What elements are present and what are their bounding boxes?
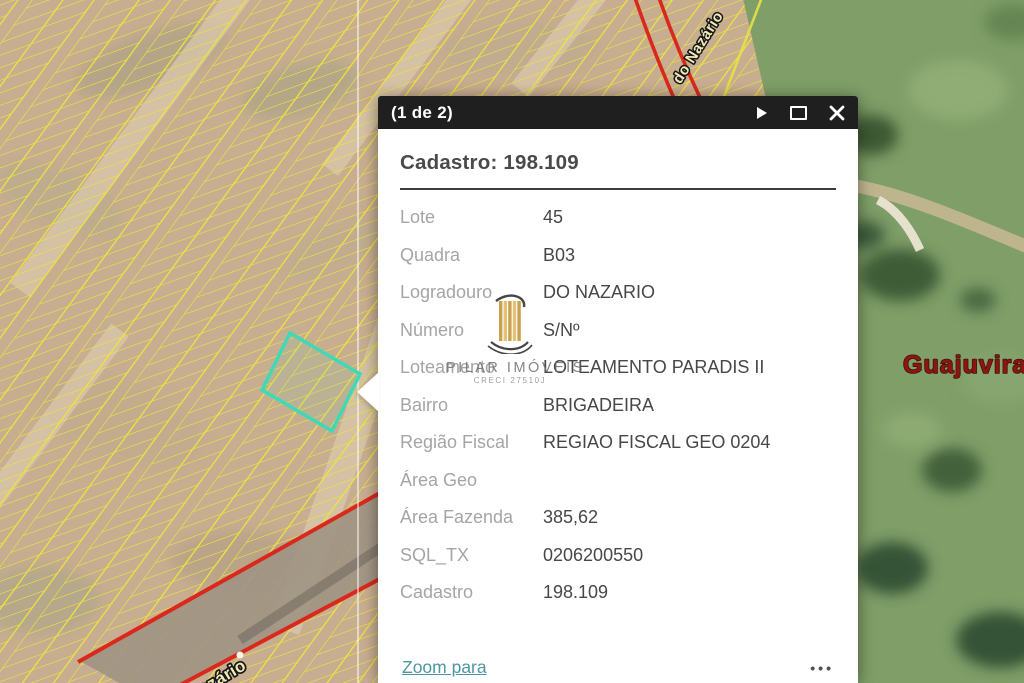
field-value: 0206200550 (543, 545, 643, 566)
field-value: 198.109 (543, 582, 608, 603)
feature-info-popup: (1 de 2) Cadastro: 198.109 (378, 96, 858, 683)
field-label: Área Fazenda (400, 507, 543, 528)
popup-title: Cadastro: 198.109 (400, 151, 836, 175)
place-label-guajuvira: Guajuvira (903, 351, 1024, 379)
popup-callout-arrow (357, 372, 379, 412)
close-button[interactable] (829, 105, 845, 121)
play-icon (756, 106, 768, 120)
field-label: Bairro (400, 395, 543, 416)
popup-body: Cadastro: 198.109 Lote 45 Quadra B03 Log… (378, 151, 858, 612)
field-label: Quadra (400, 245, 543, 266)
field-row-sql-tx: SQL_TX 0206200550 (400, 537, 836, 575)
maximize-button[interactable] (790, 106, 807, 120)
field-row-loteamento: Loteamento LOTEAMENTO PARADIS II (400, 349, 836, 387)
popup-pager: (1 de 2) (391, 103, 453, 123)
field-value: LOTEAMENTO PARADIS II (543, 357, 764, 378)
field-label: Lote (400, 207, 543, 228)
attribute-table: Lote 45 Quadra B03 Logradouro DO NAZARIO… (400, 199, 836, 612)
field-label: Logradouro (400, 282, 543, 303)
popup-header: (1 de 2) (378, 96, 858, 129)
field-row-quadra: Quadra B03 (400, 237, 836, 275)
gis-map-screen: do Nazário do Nazário Guajuvira (1 de 2) (0, 0, 1024, 683)
field-label: Loteamento (400, 357, 543, 378)
field-row-cadastro: Cadastro 198.109 (400, 574, 836, 612)
next-feature-button[interactable] (756, 106, 768, 120)
close-icon (829, 105, 845, 121)
field-row-logradouro: Logradouro DO NAZARIO (400, 274, 836, 312)
field-row-lote: Lote 45 (400, 199, 836, 237)
title-divider (400, 188, 836, 190)
field-row-numero: Número S/Nº (400, 312, 836, 350)
field-label: Número (400, 320, 543, 341)
field-value: B03 (543, 245, 575, 266)
popup-footer: Zoom para ••• (378, 657, 858, 678)
field-row-area-geo: Área Geo (400, 462, 836, 500)
field-label: Área Geo (400, 470, 543, 491)
field-row-regiao-fiscal: Região Fiscal REGIAO FISCAL GEO 0204 (400, 424, 836, 462)
field-label: SQL_TX (400, 545, 543, 566)
field-label: Região Fiscal (400, 432, 543, 453)
maximize-icon (790, 106, 807, 120)
zoom-to-link[interactable]: Zoom para (402, 657, 487, 678)
field-label: Cadastro (400, 582, 543, 603)
field-value: REGIAO FISCAL GEO 0204 (543, 432, 770, 453)
more-options-icon[interactable]: ••• (810, 660, 834, 676)
field-value: 385,62 (543, 507, 598, 528)
field-value: DO NAZARIO (543, 282, 655, 303)
field-row-bairro: Bairro BRIGADEIRA (400, 387, 836, 425)
field-value: BRIGADEIRA (543, 395, 654, 416)
field-value: 45 (543, 207, 563, 228)
field-row-area-fazenda: Área Fazenda 385,62 (400, 499, 836, 537)
field-value: S/Nº (543, 320, 580, 341)
